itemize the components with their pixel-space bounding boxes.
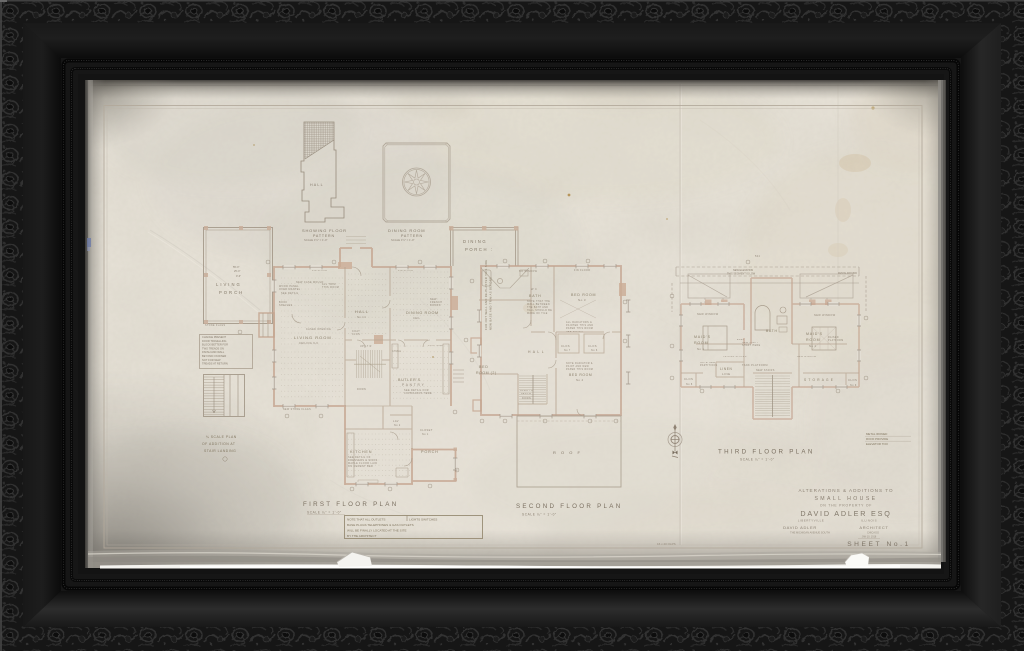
svg-text:No 3: No 3 (578, 298, 586, 302)
svg-text:LIBERTYVILLE: LIBERTYVILLE (798, 519, 825, 523)
svg-text:CHINA: CHINA (392, 350, 401, 353)
svg-text:ON CEMENT BED: ON CEMENT BED (348, 465, 373, 468)
svg-text:PAPER THIS ROOM: PAPER THIS ROOM (566, 327, 593, 330)
svg-text:ROOM: ROOM (694, 341, 708, 345)
svg-text:ROOM (2): ROOM (2) (476, 371, 497, 375)
svg-text:NOTE RADIATOR &: NOTE RADIATOR & (566, 362, 593, 365)
svg-text:LIVING: LIVING (216, 282, 242, 287)
svg-text:FIN FLOOR: FIN FLOOR (312, 270, 327, 272)
svg-text:LINE: LINE (722, 372, 731, 376)
svg-text:CHANGE PRESENT: CHANGE PRESENT (202, 335, 226, 339)
svg-text:SEE FINISH: SEE FINISH (566, 331, 583, 333)
svg-text:BUTLER'S: BUTLER'S (398, 378, 421, 382)
svg-text:ALTERATIONS & ADDITIONS TO: ALTERATIONS & ADDITIONS TO (798, 488, 893, 493)
svg-text:MADE OF TILE: MADE OF TILE (527, 312, 548, 315)
svg-text:WALL BETWEEN: WALL BETWEEN (527, 303, 550, 306)
svg-text:No 6: No 6 (591, 349, 598, 352)
svg-text:SCALE ¼" = 1'-0": SCALE ¼" = 1'-0" (522, 513, 557, 517)
svg-text:504: 504 (755, 255, 760, 258)
svg-text:KITCHEN: KITCHEN (350, 450, 372, 454)
svg-text:CUPBOARDS HERE: CUPBOARDS HERE (404, 392, 432, 395)
svg-text:SECOND FLOOR PLAN: SECOND FLOOR PLAN (516, 503, 623, 510)
svg-text:PORCH :: PORCH : (465, 247, 494, 252)
svg-text:TWO TREADS ON: TWO TREADS ON (202, 346, 224, 350)
svg-text:NEW LIGHT: NEW LIGHT (742, 342, 759, 344)
svg-text:BY THE ARCHITECT: BY THE ARCHITECT (347, 534, 377, 538)
svg-text:BELOW: BELOW (521, 393, 532, 395)
svg-text:No 8: No 8 (686, 383, 693, 386)
svg-text:R O O F: R O O F (553, 450, 582, 455)
svg-text:NOTE NEW: NOTE NEW (700, 362, 716, 364)
svg-text:CHICAGO: CHICAGO (867, 531, 879, 535)
svg-text:CEILING SLOPES: CEILING SLOPES (723, 356, 747, 358)
svg-text:HALL SHOULD BE: HALL SHOULD BE (527, 309, 552, 312)
svg-text:MAID'S: MAID'S (806, 332, 823, 336)
svg-text:BED: BED (479, 365, 489, 369)
svg-text:FIN FLOOR: FIN FLOOR (574, 269, 590, 272)
svg-text:LIVING ROOM: LIVING ROOM (294, 335, 332, 340)
svg-text:LAV: LAV (393, 419, 399, 423)
svg-text:No 2: No 2 (394, 424, 401, 427)
svg-text:TANK PLATFORM: TANK PLATFORM (742, 364, 768, 367)
svg-text:No 14: No 14 (357, 315, 366, 319)
svg-text:ALL RADIATORS &: ALL RADIATORS & (566, 321, 592, 324)
svg-text:THE MICHIGAN AVENUE SOUTH: THE MICHIGAN AVENUE SOUTH (790, 531, 830, 535)
svg-text:ARCHITECT: ARCHITECT (859, 525, 888, 530)
svg-text:No 1: No 1 (422, 433, 429, 436)
svg-text:NOTE THAT THE: NOTE THAT THE (527, 300, 550, 303)
svg-text:NEW WINDOW: NEW WINDOW (814, 314, 836, 317)
svg-text:LIGHTS SWITCHES: LIGHTS SWITCHES (409, 518, 437, 522)
svg-text:BED ROOM: BED ROOM (569, 373, 592, 377)
svg-text:CEILING 9-6: CEILING 9-6 (299, 341, 318, 345)
svg-text:CLOSET: CLOSET (420, 428, 433, 432)
svg-text:ON THE PROPERTY OF: ON THE PROPERTY OF (820, 504, 872, 508)
svg-text:SEE DETAIL: SEE DETAIL (281, 292, 299, 295)
svg-text:CASED OPENING: CASED OPENING (306, 328, 331, 331)
svg-text:NEW BASE AND TRIM AS BEFORE: NEW BASE AND TRIM AS BEFORE (489, 277, 493, 330)
svg-text:SCALE 1½" = 1'-0": SCALE 1½" = 1'-0" (304, 238, 328, 242)
svg-text:No 2: No 2 (809, 344, 817, 348)
svg-text:DINING ROOM: DINING ROOM (388, 228, 425, 233)
svg-text:S T O R A G E: S T O R A G E (804, 378, 834, 382)
svg-text:No 1: No 1 (697, 347, 705, 351)
svg-text:THIRD FLOOR PLAN: THIRD FLOOR PLAN (718, 449, 815, 456)
svg-text:THIS ROOM: THIS ROOM (322, 286, 339, 289)
svg-text:BLOCK BETTER FOR: BLOCK BETTER FOR (202, 343, 228, 347)
svg-text:25'-0": 25'-0" (234, 270, 240, 273)
svg-text:LINEN: LINEN (720, 367, 732, 371)
svg-text:BEYOND ON RISER: BEYOND ON RISER (202, 354, 226, 358)
svg-text:NEW WINDOW: NEW WINDOW (697, 313, 719, 316)
svg-text:DOORS: DOORS (430, 304, 441, 307)
svg-text:SHELVES: SHELVES (279, 304, 293, 307)
svg-text:SCALE ¼" = 1'-0": SCALE ¼" = 1'-0" (307, 511, 342, 515)
svg-text:ELEC: ELEC (737, 339, 745, 341)
svg-text:FENCE AROUND: FENCE AROUND (838, 272, 857, 275)
svg-text:55'-0": 55'-0" (233, 266, 239, 269)
svg-text:STONE FLAGS: STONE FLAGS (205, 324, 226, 327)
svg-text:JAN 10. 1918: JAN 10. 1918 (862, 536, 877, 539)
svg-text:NEW WINDOW: NEW WINDOW (797, 356, 817, 358)
svg-text:DAVID ADLER: DAVID ADLER (783, 525, 817, 530)
svg-text:PAINT AND NEW: PAINT AND NEW (566, 365, 590, 368)
svg-text:DINING: DINING (463, 239, 487, 244)
svg-text:SCALE ¼" = 1'-0": SCALE ¼" = 1'-0" (740, 458, 775, 462)
svg-text:NEW STONE FLAGS: NEW STONE FLAGS (283, 408, 311, 411)
svg-text:NEW CASE MOULD: NEW CASE MOULD (296, 281, 324, 284)
svg-text:CLOS: CLOS (848, 378, 857, 382)
svg-text:No 4: No 4 (576, 378, 584, 382)
svg-text:SCALE 1½" = 1'-0": SCALE 1½" = 1'-0" (391, 238, 415, 242)
svg-text:DINING ROOM: DINING ROOM (406, 311, 439, 315)
svg-text:DAVID ADLER ESQ: DAVID ADLER ESQ (800, 509, 891, 518)
svg-text:ROOF PROVIDE: ROOF PROVIDE (866, 437, 888, 441)
svg-text:No 9: No 9 (850, 384, 857, 387)
svg-text:PLATFORM: PLATFORM (828, 339, 844, 342)
svg-text:UP 17 R: UP 17 R (360, 345, 372, 348)
svg-text:HALL: HALL (310, 183, 324, 187)
svg-text:OF ADDITION AT: OF ADDITION AT (202, 442, 236, 446)
svg-text:DOWN: DOWN (357, 388, 366, 391)
svg-text:DOOR TRAVELLING: DOOR TRAVELLING (202, 339, 226, 343)
svg-text:THE BATH AND: THE BATH AND (527, 306, 548, 309)
svg-text:CLOS: CLOS (684, 377, 693, 381)
svg-text:FIRST FLOOR PLAN: FIRST FLOOR PLAN (303, 501, 398, 508)
svg-text:SLOP SINK: SLOP SINK (428, 345, 443, 347)
svg-text:STAIR LANDING: STAIR LANDING (204, 449, 236, 453)
svg-text:THIS SEGMENT IS LOW: THIS SEGMENT IS LOW (727, 273, 756, 276)
svg-text:FINISH AND WALL: FINISH AND WALL (202, 350, 225, 354)
svg-text:H A L L: H A L L (528, 350, 544, 354)
svg-text:PORCH: PORCH (219, 290, 244, 295)
svg-text:TREADS AT RETURN: TREADS AT RETURN (202, 362, 228, 366)
svg-text:NO WINDOW: NO WINDOW (519, 270, 538, 273)
svg-text:CLOS: CLOS (588, 344, 597, 348)
svg-text:MAID'S: MAID'S (694, 335, 711, 339)
svg-text:9'-6": 9'-6" (236, 275, 241, 278)
svg-text:CEIL: CEIL (413, 316, 421, 320)
svg-text:ILLINOIS: ILLINOIS (861, 519, 877, 523)
svg-text:SMALL HOUSE: SMALL HOUSE (814, 496, 877, 502)
svg-text:PAINTED THIS AND: PAINTED THIS AND (566, 324, 593, 327)
svg-text:WILL BE FINALLY LOCATED AT THE: WILL BE FINALLY LOCATED AT THE SITE (347, 529, 407, 533)
svg-text:P A N T R Y: P A N T R Y (402, 383, 425, 387)
svg-text:SHOWING FLOOR: SHOWING FLOOR (302, 228, 347, 233)
svg-text:BED ROOM: BED ROOM (571, 293, 596, 297)
svg-text:CLOS: CLOS (561, 344, 570, 348)
svg-text:PORCH: PORCH (421, 450, 439, 454)
svg-text:SHEET No.1: SHEET No.1 (847, 541, 911, 548)
svg-text:ELEVATOR TOO: ELEVATOR TOO (866, 442, 889, 446)
svg-text:BATH: BATH (766, 329, 778, 333)
svg-text:BASE PLUGS TELEPHONES & GAS O: BASE PLUGS TELEPHONES & GAS OUTLETS (347, 523, 414, 527)
svg-text:16 x 20 OLPS: 16 x 20 OLPS (657, 542, 676, 546)
svg-text:ROOM: ROOM (806, 338, 820, 342)
svg-text:NEW STAIRS: NEW STAIRS (756, 369, 775, 372)
svg-text:SHAFT HERE: SHAFT HERE (742, 344, 761, 347)
svg-text:METAL IRONED: METAL IRONED (866, 432, 887, 436)
svg-text:¼ SCALE PLAN: ¼ SCALE PLAN (206, 435, 237, 439)
svg-text:PARTITIONS: PARTITIONS (700, 364, 718, 367)
svg-text:HALL: HALL (355, 309, 369, 314)
svg-text:NOT FOR NEW: NOT FOR NEW (202, 358, 221, 362)
svg-text:OPEN TO: OPEN TO (520, 390, 533, 392)
svg-text:W C: W C (531, 287, 537, 291)
svg-text:RAISED: RAISED (828, 336, 839, 339)
svg-text:NOTE THAT ALL OUTLETS: NOTE THAT ALL OUTLETS (347, 518, 385, 522)
svg-text:FUR OUT WALL AND RE-PLASTER TH: FUR OUT WALL AND RE-PLASTER THIS SIDE (484, 260, 488, 330)
svg-text:FIN FLOOR: FIN FLOOR (398, 270, 413, 272)
svg-text:PAPER THIS ROOM: PAPER THIS ROOM (566, 368, 593, 371)
svg-text:No 7: No 7 (564, 349, 571, 352)
svg-text:CLOS: CLOS (352, 333, 360, 336)
svg-text:OVER MANTEL: OVER MANTEL (279, 288, 301, 291)
svg-text:BATH: BATH (529, 294, 542, 298)
svg-text:DOWN: DOWN (522, 397, 531, 400)
